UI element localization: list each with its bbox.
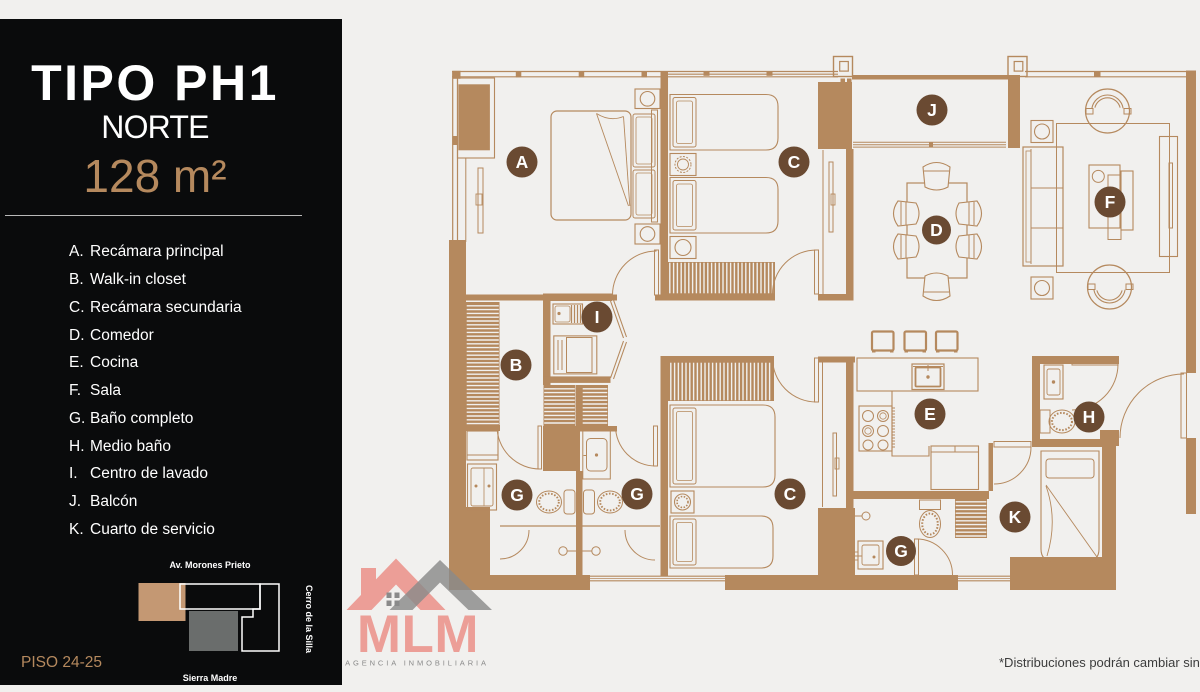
svg-text:I: I [595,307,600,327]
svg-text:B: B [510,355,523,375]
svg-text:Cerro de la Silla: Cerro de la Silla [304,585,314,654]
svg-text:C: C [784,484,797,504]
svg-text:K: K [1009,507,1022,527]
svg-text:AGENCIA INMOBILIARIA: AGENCIA INMOBILIARIA [345,659,489,668]
svg-text:A: A [516,152,529,172]
svg-text:J: J [927,100,937,120]
svg-text:Av. Morones Prieto: Av. Morones Prieto [169,560,251,570]
svg-text:C: C [788,152,801,172]
svg-text:Sierra Madre: Sierra Madre [183,673,238,683]
svg-text:E: E [924,404,936,424]
svg-text:F: F [1105,192,1116,212]
svg-text:H: H [1083,407,1096,427]
svg-text:D: D [930,220,943,240]
svg-text:G: G [894,541,908,561]
svg-text:G: G [510,485,524,505]
svg-text:MLM: MLM [357,605,479,664]
svg-text:G: G [630,484,644,504]
